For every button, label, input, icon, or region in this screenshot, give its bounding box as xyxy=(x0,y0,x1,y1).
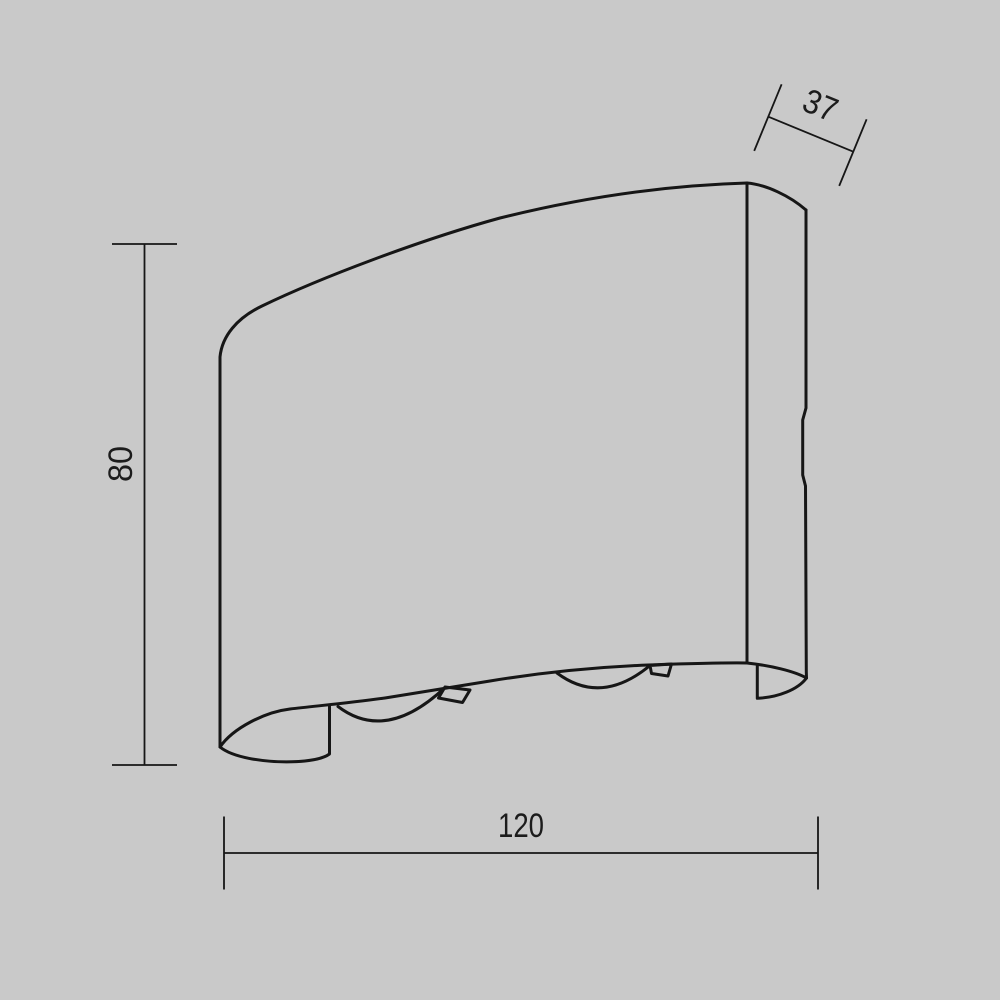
dimension-height: 80 xyxy=(102,244,177,765)
dimension-depth: 37 xyxy=(754,82,866,186)
dimension-width-label: 120 xyxy=(498,807,544,845)
lamp-body xyxy=(220,183,807,762)
lamp-front-face-outline xyxy=(220,183,747,747)
lamp-technical-drawing: 80 120 37 xyxy=(0,0,1000,1000)
dimension-depth-label: 37 xyxy=(797,82,843,130)
lamp-side-bottom-cap xyxy=(747,663,807,698)
lamp-lens-tab-left xyxy=(439,687,471,703)
dimension-height-label: 80 xyxy=(102,446,140,482)
lamp-side-top-edge xyxy=(747,183,806,210)
dimension-depth-tick-right xyxy=(839,119,866,186)
dimension-depth-tick-left xyxy=(754,84,781,151)
lamp-bottom-plate-edge xyxy=(220,707,330,762)
dimension-width: 120 xyxy=(224,807,818,890)
lamp-side-right-edge xyxy=(803,210,807,678)
lamp-lens-dome-left xyxy=(338,688,445,721)
